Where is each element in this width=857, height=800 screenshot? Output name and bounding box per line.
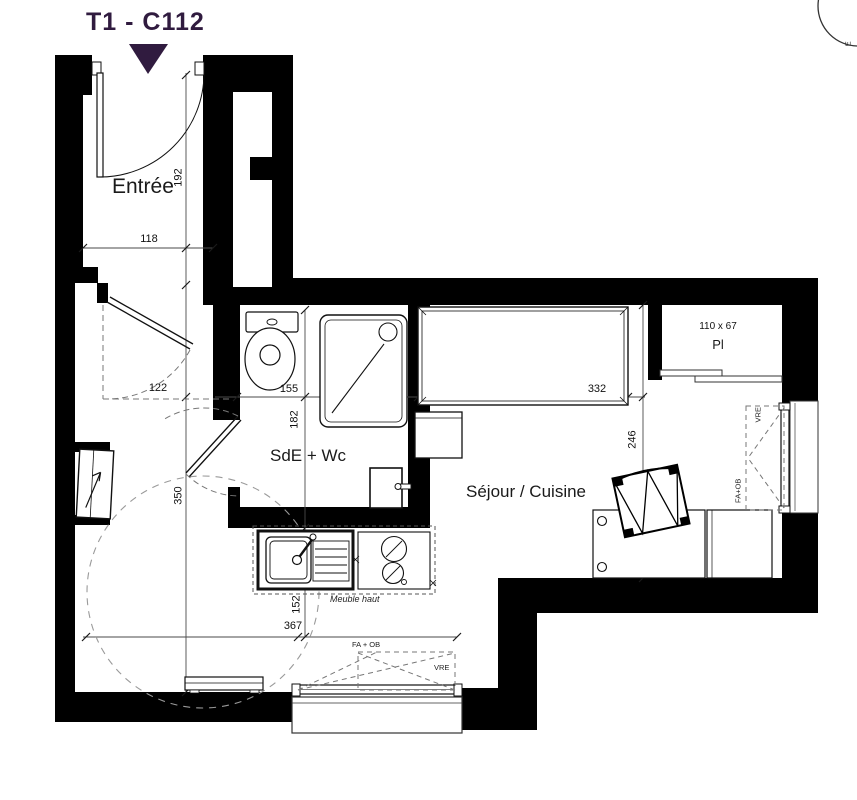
washbasin-cabinet — [370, 468, 411, 508]
plan-title: T1 - C112 — [86, 10, 205, 35]
dim-bathroom-depth: 182 — [290, 405, 301, 435]
floor-plan-drawing — [0, 0, 857, 800]
dim-hall-clearance: 122 — [143, 383, 173, 394]
room-label-entree: Entrée — [112, 176, 174, 197]
shaft-niche — [233, 92, 272, 287]
radiator-left — [76, 449, 114, 519]
dim-living-depth: 246 — [628, 425, 639, 455]
window-bottom-vre-label: VRE — [434, 664, 449, 672]
shower — [320, 315, 407, 427]
entrance-door — [92, 62, 204, 177]
dim-bed-length: 332 — [582, 384, 612, 395]
closet-sliding-door — [660, 370, 782, 382]
armchair — [612, 464, 689, 537]
room-label-bathroom: SdE + Wc — [270, 447, 346, 464]
window-bottom — [292, 652, 462, 696]
window-right-faob-label: FA+OB — [734, 474, 742, 508]
balcony-sill — [292, 697, 462, 733]
window-bottom-faob-label: FA + OB — [352, 641, 380, 649]
kitchen-sink — [258, 531, 353, 589]
window-right-vre-label: VRE — [754, 400, 762, 430]
nightstand — [415, 412, 462, 458]
floor-plan: T1 - C112 Entrée SdE + Wc Séjour / Cuisi… — [0, 0, 857, 800]
dim-bottom-width: 367 — [278, 621, 308, 632]
dim-kitchen-depth: 152 — [292, 590, 303, 620]
corner-symbol-label: E — [844, 34, 852, 54]
toilet — [245, 312, 298, 390]
desk — [707, 510, 772, 578]
dim-bathroom-width: 155 — [274, 384, 304, 395]
cooktop — [352, 532, 436, 589]
radiator-bottom — [185, 677, 263, 693]
dim-entree-depth: 192 — [174, 163, 185, 193]
room-label-living: Séjour / Cuisine — [466, 483, 586, 500]
entrance-marker — [129, 44, 168, 74]
dim-entree-width: 118 — [134, 234, 164, 245]
dim-left-height: 350 — [174, 481, 185, 511]
kitchen-cabinet-label: Meuble haut — [330, 595, 380, 604]
closet-size: 110 x 67 — [688, 322, 748, 332]
room-label-closet: Pl — [688, 338, 748, 351]
